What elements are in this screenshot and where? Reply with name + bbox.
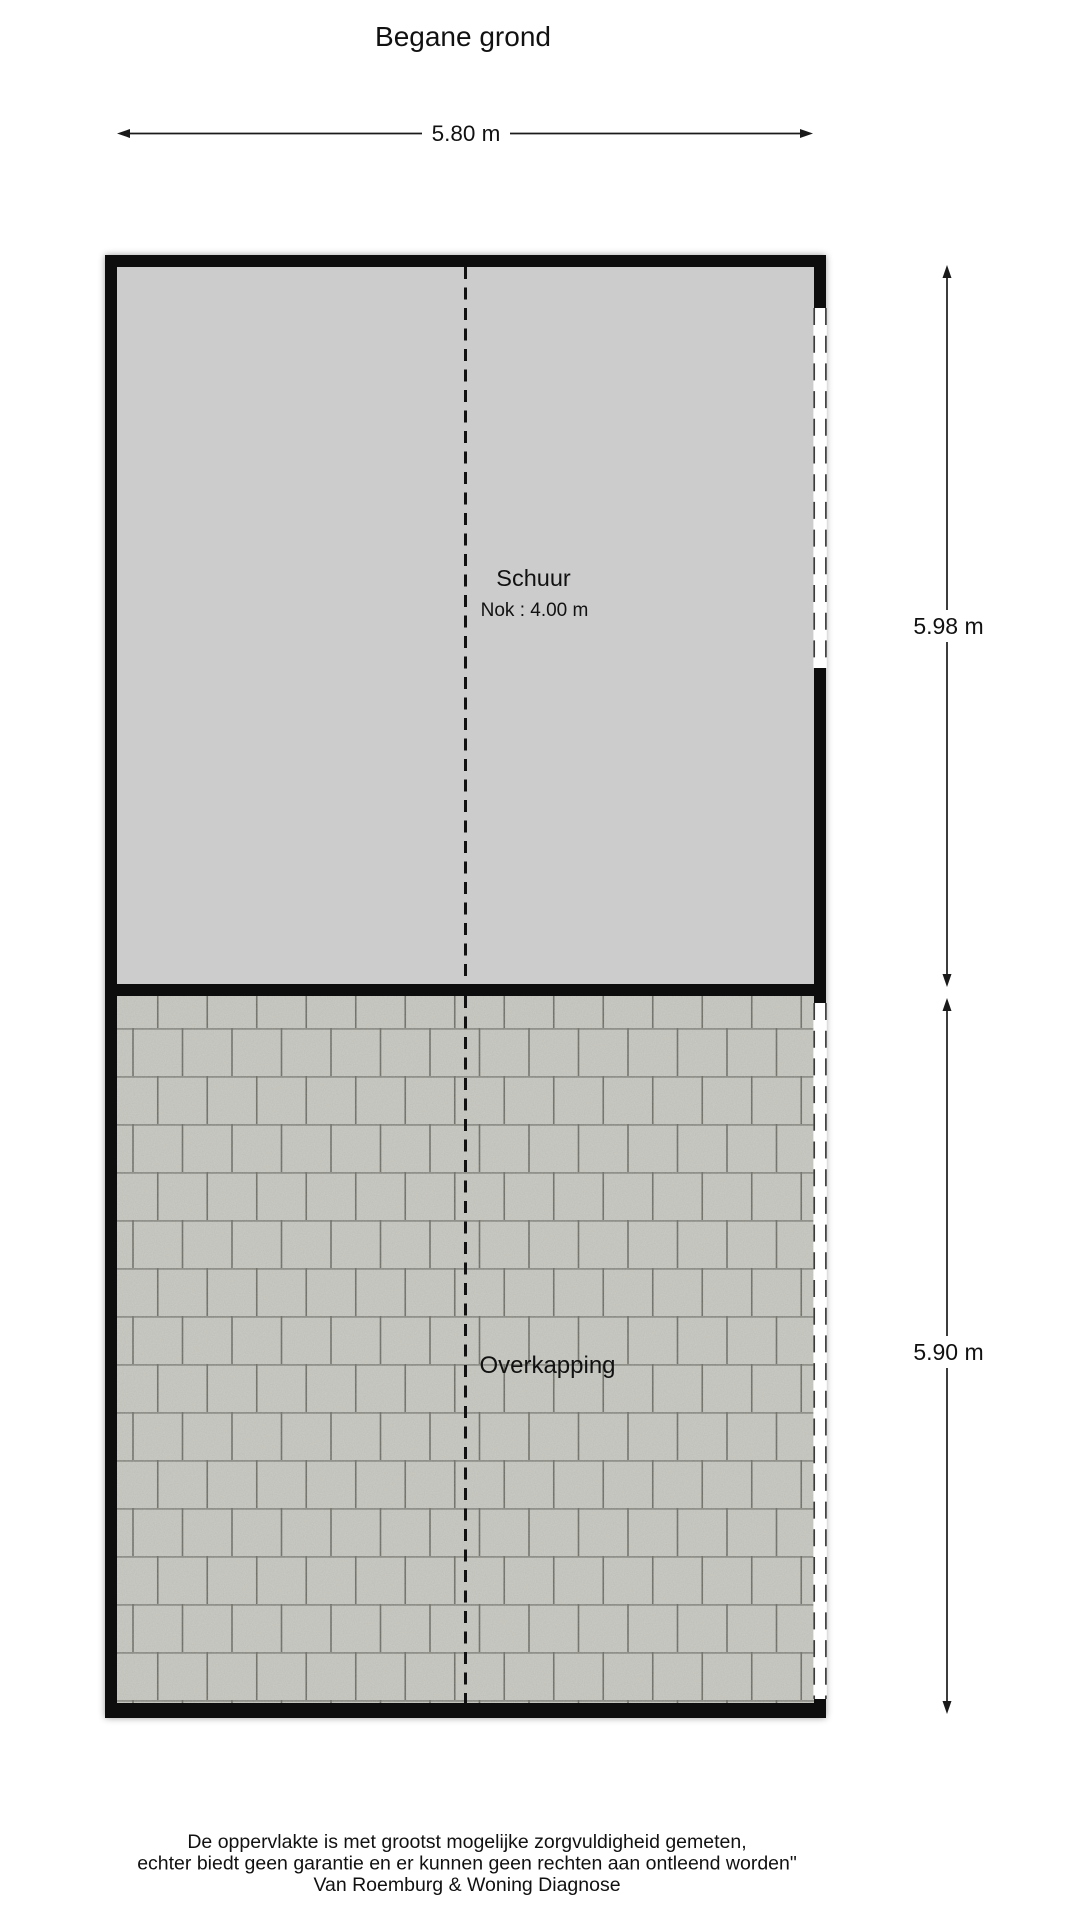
svg-text:5.90 m: 5.90 m — [913, 1339, 983, 1365]
svg-text:Van Roemburg & Woning Diagnose: Van Roemburg & Woning Diagnose — [313, 1874, 620, 1896]
svg-text:5.98 m: 5.98 m — [913, 613, 983, 639]
svg-text:echter biedt geen garantie en: echter biedt geen garantie en er kunnen … — [137, 1853, 797, 1875]
svg-text:5.80 m: 5.80 m — [432, 121, 501, 146]
svg-text:De oppervlakte is met grootst: De oppervlakte is met grootst mogelijke … — [187, 1831, 746, 1853]
svg-text:Overkapping: Overkapping — [479, 1352, 615, 1379]
svg-text:Schuur: Schuur — [496, 565, 571, 591]
svg-text:Nok : 4.00 m: Nok : 4.00 m — [481, 600, 589, 621]
svg-text:Begane grond: Begane grond — [375, 21, 551, 52]
